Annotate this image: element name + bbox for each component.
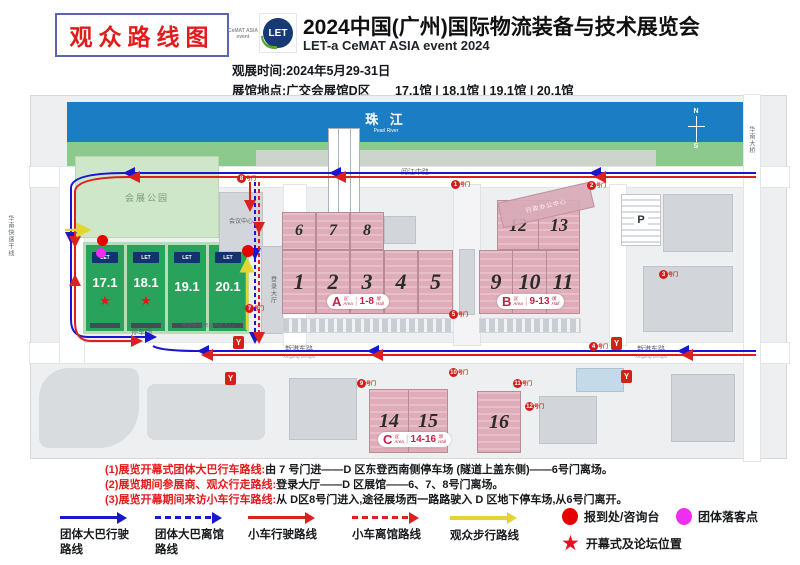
note-text: 登录大厅——D 区展馆——6、7、8号门离场。 [276,479,503,491]
zone-en: Area [343,302,353,307]
hall-en: Hall [552,302,560,307]
walking-route [65,230,247,330]
magenta-circle-icon [676,508,692,525]
legend-opening-ceremony: ★ 开幕式及论坛位置 [561,533,682,554]
let-logo: LET [259,13,297,53]
gate-12: 12号门 [525,402,544,411]
note-label: (1)展览开幕式团体大巴行车路线: [105,464,265,476]
route-map-badge: 观众路线图 [55,13,229,57]
gate-1: 1号门 [451,180,470,189]
area-letter: B [502,295,511,308]
page-title: 2024中国(广州)国际物流装备与技术展览会 [303,11,700,41]
page-subtitle: LET-a CeMAT ASIA event 2024 [303,38,490,53]
route-note-2: (2)展览期间参展商、观众行走路线:登录大厅——D 区展馆——6、7、8号门离场… [105,476,795,492]
gate-3: 3号门 [659,270,678,279]
metro-icon: Y [225,372,236,385]
note-label: (3)展览开幕期间来访小车行车路线: [105,494,276,506]
legend-dropoff: 团体落客点 [676,508,758,525]
legend-label: 小车行驶路线 [248,528,317,543]
legend-car-arrival: 小车行驶路线 [248,516,317,543]
blue-dashed-arrow-icon [155,516,219,519]
visitor-route-poster: 观众路线图 CeMAT ASIA event LET 2024中国(广州)国际物… [0,0,800,565]
registration-point-marker [97,235,108,246]
gate-7: 7号门 [245,304,264,313]
note-label: (2)展览期间参展商、观众行走路线: [105,479,276,491]
area-a-badge: A 区Area |1-8 馆Hall [327,294,389,309]
site-map: 珠 江 Pearl River N S 阅江中路 新港东路 Xingang Do… [30,95,787,459]
road-label-west: 华南快速干线 [6,215,13,257]
car-arrival-route [75,177,756,355]
hall-range: 1-8 [360,297,374,307]
zone-en: Area [394,440,404,445]
registration-point-marker-2 [242,245,254,257]
gate-8: 8号门 [237,174,256,183]
note-text: 由 7 号门进——D 区东登西南侧停车场 (隧道上盖东侧)——6号门离场。 [265,464,613,476]
legend-bus-departure: 团体大巴离馆 路线 [155,516,224,558]
area-b-badge: B 区Area |9-13 馆Hall [497,294,564,309]
gate-9: 9号门 [357,379,376,388]
metro-icon: Y [611,337,622,350]
bus-arrival-route [71,173,756,351]
gate-10: 10号门 [449,368,468,377]
red-circle-icon [562,508,578,525]
gate-2: 2号门 [587,181,606,190]
legend-label: 团体落客点 [698,508,758,525]
legend-car-departure: 小车离馆路线 [352,516,421,543]
exhibition-time: 观展时间:2024年5月29-31日 [232,60,390,79]
hall-range: 14-16 [411,435,437,445]
legend-label: 开幕式及论坛位置 [586,535,682,552]
cemat-asia-logo: CeMAT ASIA event [228,28,258,40]
red-star-icon: ★ [561,533,580,554]
area-letter: A [332,295,341,308]
route-note-1: (1)展览开幕式团体大巴行车路线:由 7 号门进——D 区东登西南侧停车场 (隧… [105,461,795,477]
legend-bus-arrival: 团体大巴行驶 路线 [60,516,129,558]
hall-range: 9-13 [530,297,550,307]
legend-label: 报到处/咨询台 [584,508,659,525]
metro-icon: Y [621,370,632,383]
gate-5: 5号门 [449,310,468,319]
let-logo-circle: LET [263,18,293,48]
route-note-3: (3)展览开幕期间来访小车行车路线:从 D区8号门进入,途径展场西一路路驶入 D… [105,491,795,507]
red-dashed-arrow-icon [352,516,416,519]
gate-4: 4号门 [589,342,608,351]
area-c-badge: C 区Area |14-16 馆Hall [378,432,451,447]
yellow-solid-arrow-icon [450,516,514,520]
blue-solid-arrow-icon [60,516,124,519]
red-solid-arrow-icon [248,516,312,519]
group-dropoff-marker [96,248,106,258]
metro-icon: Y [233,336,244,349]
legend-walking: 观众步行路线 [450,516,519,544]
hall-en: Hall [376,302,384,307]
gate-11: 11号门 [513,379,532,388]
legend-label: 观众步行路线 [450,529,519,544]
legend-label: 团体大巴离馆 路线 [155,528,224,558]
legend-registration: 报到处/咨询台 [562,508,659,525]
legend-label: 团体大巴行驶 路线 [60,528,129,558]
area-letter: C [383,433,392,446]
legend-label: 小车离馆路线 [352,528,421,543]
cemat-logo-subtext: event [236,34,249,40]
note-text: 从 D区8号门进入,途径展场西一路路驶入 D 区地下停车场,从6号门离开。 [276,494,627,506]
hall-en: Hall [438,440,446,445]
zone-en: Area [513,302,523,307]
